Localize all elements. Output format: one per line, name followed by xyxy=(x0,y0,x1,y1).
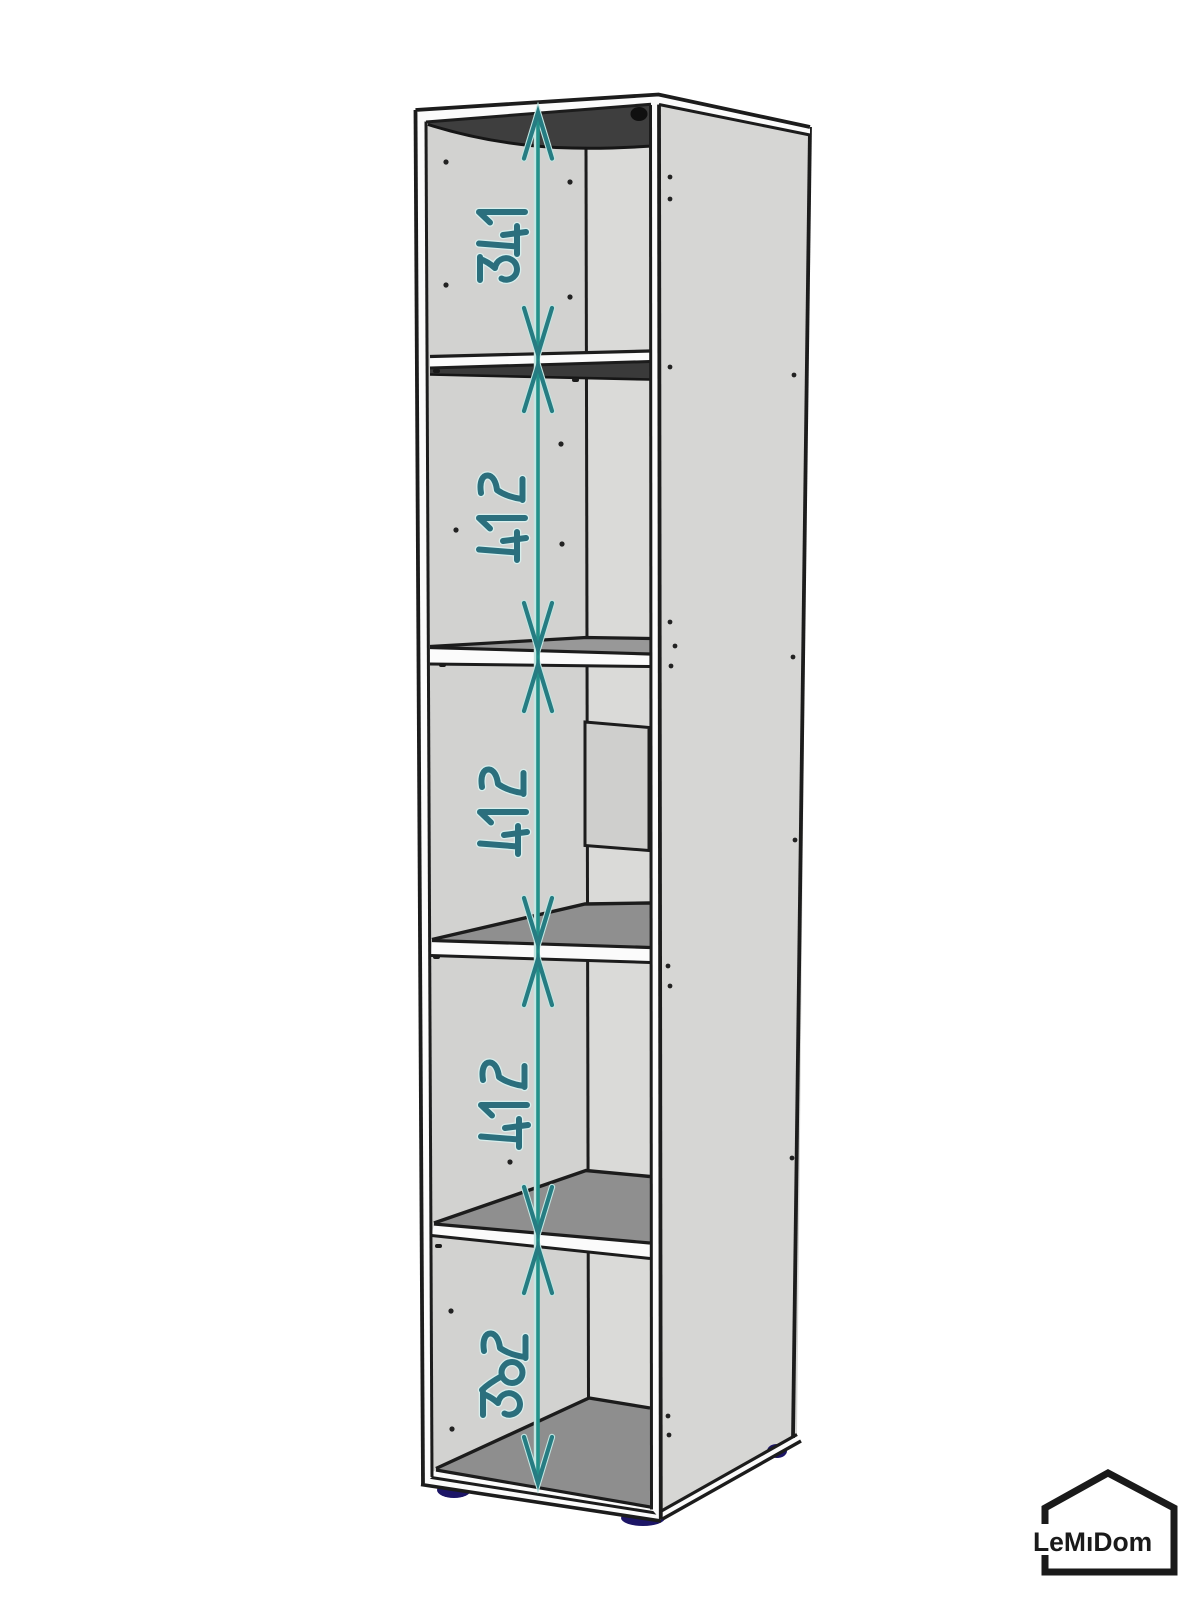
svg-text:LeMıDom: LeMıDom xyxy=(1033,1527,1152,1557)
